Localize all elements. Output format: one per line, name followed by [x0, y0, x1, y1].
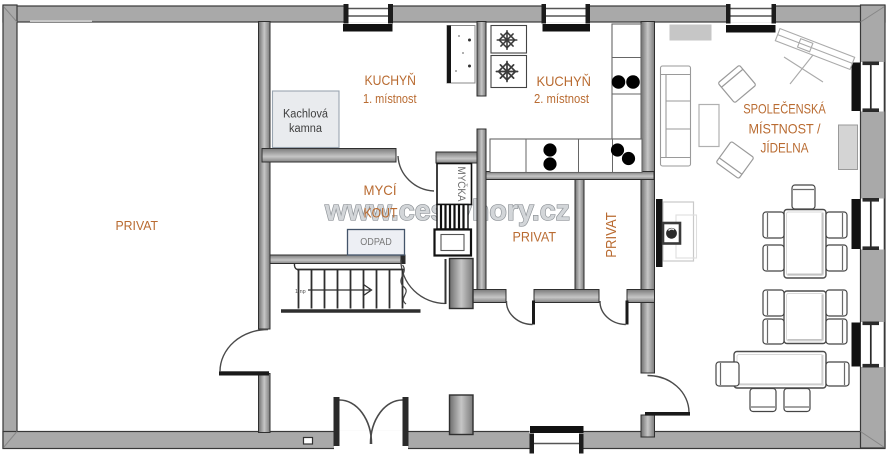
svg-text:KUCHYŇ: KUCHYŇ — [365, 72, 417, 88]
svg-text:KOUT: KOUT — [364, 205, 398, 221]
svg-text:kamna: kamna — [289, 123, 323, 135]
svg-text:SPOLEČENSKÁ: SPOLEČENSKÁ — [743, 101, 826, 117]
svg-text:1. místnost: 1. místnost — [363, 91, 417, 106]
svg-text:JÍDELNA: JÍDELNA — [761, 140, 810, 156]
svg-text:MYCÍ: MYCÍ — [364, 182, 397, 198]
svg-text:PRIVAT: PRIVAT — [513, 230, 557, 245]
svg-text:2. místnost: 2. místnost — [534, 91, 589, 106]
svg-text:PRIVAT: PRIVAT — [604, 212, 620, 258]
svg-text:MYČKA: MYČKA — [455, 167, 468, 203]
svg-text:PRIVAT: PRIVAT — [116, 218, 159, 233]
svg-text:Kachlová: Kachlová — [283, 109, 329, 121]
svg-text:MÍSTNOST /: MÍSTNOST / — [749, 121, 821, 137]
svg-text:ODPAD: ODPAD — [360, 236, 392, 248]
svg-text:KUCHYŇ: KUCHYŇ — [537, 73, 592, 89]
svg-text:1 np: 1 np — [295, 289, 306, 295]
